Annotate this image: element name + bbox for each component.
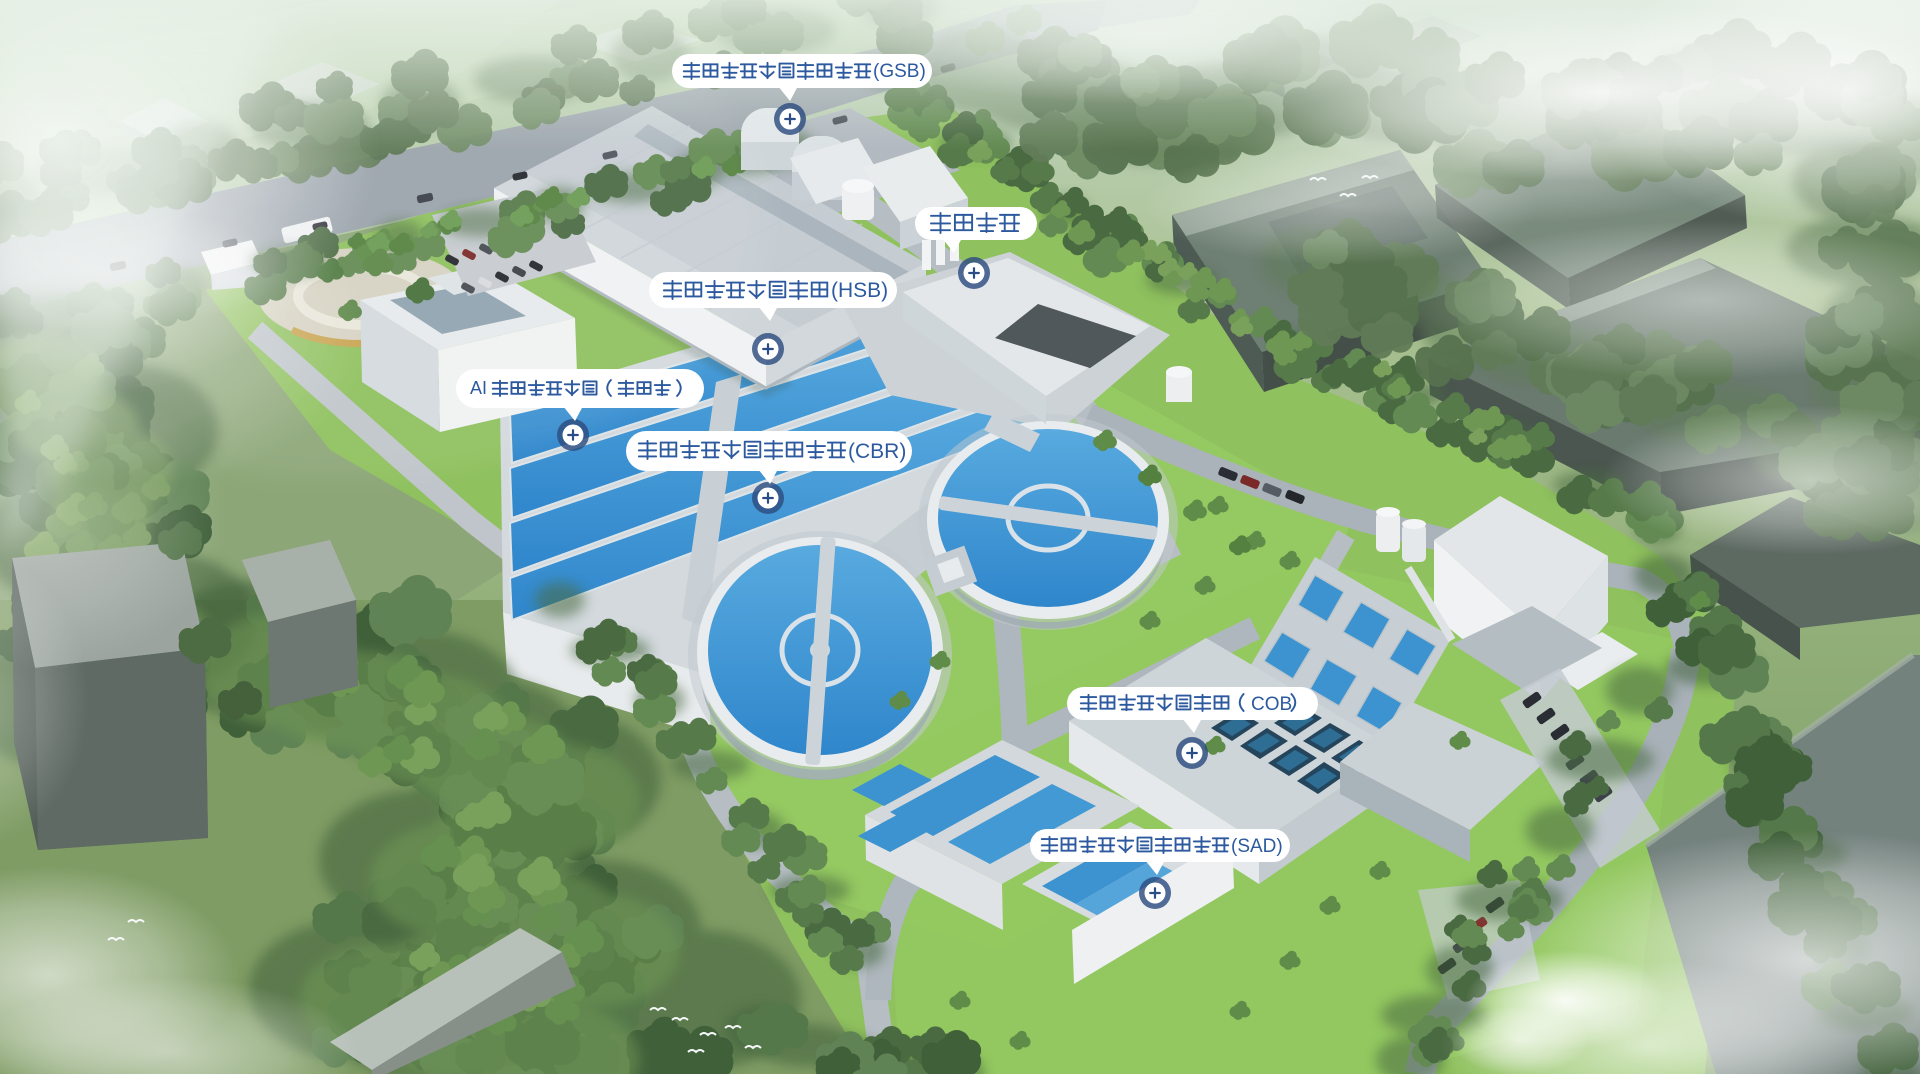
svg-text:(SAD): (SAD)	[1231, 836, 1283, 857]
svg-text:(CBR): (CBR)	[848, 440, 906, 463]
svg-text:(HSB): (HSB)	[831, 279, 888, 302]
svg-text:COB: COB	[1251, 694, 1292, 715]
svg-text:AI: AI	[470, 378, 487, 398]
svg-text:(GSB): (GSB)	[873, 61, 926, 82]
